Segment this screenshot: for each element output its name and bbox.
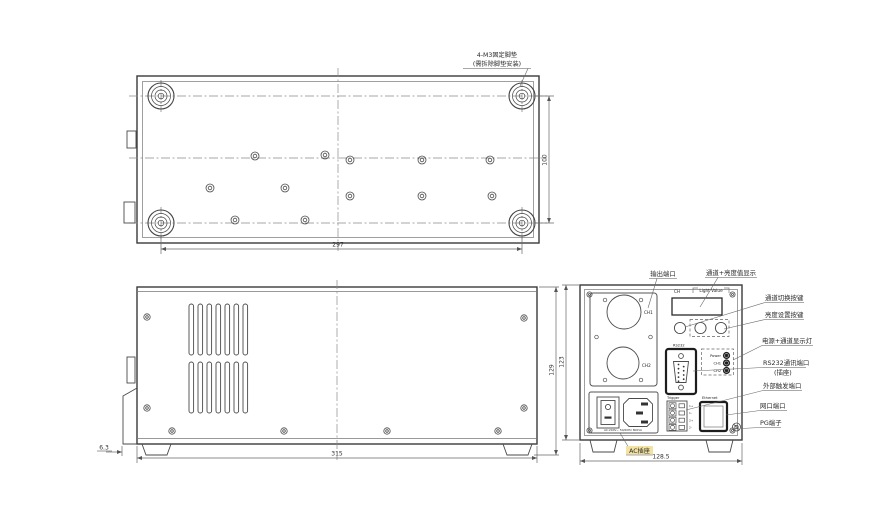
channel-switch-button	[674, 322, 685, 333]
rs232-connector	[666, 349, 696, 394]
display-group: CH Light Value	[672, 288, 729, 315]
brightness-set-callout-text: 亮度设置按键	[765, 310, 804, 319]
ac-socket-callout-text: AC插座	[629, 447, 650, 455]
output-connector-ch2	[607, 347, 639, 379]
top-dim-height-value: 100	[542, 154, 549, 166]
rear-feet	[590, 440, 733, 452]
callout-pg: PG端子	[741, 418, 782, 429]
side-dim-height: 129	[534, 287, 559, 455]
display-window	[672, 298, 722, 315]
side-dim-flange-value: 6.3	[99, 445, 109, 452]
rear-view: CH1 CH2 CH Light Value RS232	[559, 268, 814, 465]
trigger-pin-1p: 1+	[689, 404, 694, 408]
callout-ac-socket: AC插座	[620, 433, 653, 455]
ac-rating-text: AC:240V~ 50/60Hz 800VA	[604, 428, 642, 432]
rear-dim-width: 128.5	[580, 443, 742, 465]
vent-slots	[189, 304, 248, 413]
channel-switch-callout-text: 通道切换按键	[765, 293, 804, 302]
rs232-callout-line2: (插座)	[774, 368, 792, 377]
top-view-centerlines	[129, 68, 547, 251]
drawing-svg: 4-M3固定脚垫 (需拆除脚垫安装) 297 100	[0, 0, 888, 522]
top-view: 4-M3固定脚垫 (需拆除脚垫安装) 297 100	[124, 51, 554, 254]
top-dim-width-value: 297	[332, 242, 344, 249]
foot-pad-note: 4-M3固定脚垫 (需拆除脚垫安装)	[463, 51, 531, 86]
ethernet-callout-text: 网口端口	[760, 401, 786, 410]
top-dim-width: 297	[161, 236, 522, 254]
power-leds-callout-text: 电源+通道显示灯	[762, 336, 813, 345]
rs232-label: RS232	[673, 344, 685, 348]
ethernet-group: Ethernet	[700, 396, 727, 431]
rear-dim-height: 123	[559, 285, 580, 440]
callout-brightness-set: 亮度设置按键	[724, 310, 804, 329]
callout-ethernet: 网口端口	[726, 401, 787, 415]
trigger-pin-2p: 2+	[689, 418, 694, 422]
rs232-group: RS232	[666, 344, 696, 395]
output-ch1-label: CH1	[644, 310, 653, 315]
technical-drawing-sheet: 4-M3固定脚垫 (需拆除脚垫安装) 297 100	[0, 0, 888, 522]
led-power-label: Power	[710, 354, 721, 358]
foot-pad-note-line2: (需拆除脚垫安装)	[473, 60, 521, 68]
side-dim-width-value: 315	[331, 451, 343, 458]
display-callout-text: 通道+亮度值显示	[706, 268, 757, 277]
brightness-up-button	[715, 322, 726, 333]
display-ch-header: CH	[674, 289, 680, 294]
callout-rs232: RS232通讯端口 (插座)	[693, 358, 809, 377]
trigger-label: Trigger	[666, 396, 680, 400]
output-port-plate: CH1 CH2	[590, 293, 657, 386]
trigger-group: Trigger 1+ 1- 2+ 2-	[666, 396, 694, 431]
power-switch	[597, 397, 619, 428]
ethernet-label: Ethernet	[702, 396, 718, 400]
rear-dim-height-value: 123	[559, 356, 566, 368]
pg-terminal	[733, 423, 741, 431]
bottom-screws	[206, 151, 496, 224]
callout-power-leds: 电源+通道显示灯	[733, 336, 813, 360]
rs232-callout-line1: RS232通讯端口	[763, 358, 809, 367]
foot-pad-note-line1: 4-M3固定脚垫	[477, 51, 518, 59]
side-view: 315 6.3 129	[97, 280, 559, 463]
iec-inlet	[624, 399, 653, 427]
side-dim-height-value: 129	[549, 364, 556, 376]
side-screws	[144, 314, 527, 434]
pg-callout-text: PG端子	[760, 418, 782, 427]
brightness-down-button	[695, 322, 706, 333]
foot-pads	[148, 80, 535, 239]
trigger-pin-2n: 2-	[689, 426, 692, 430]
rs232-pins	[678, 364, 685, 383]
side-dim-flange: 6.3	[97, 445, 122, 457]
output-connector-ch1	[607, 295, 641, 329]
trigger-callout-text: 外部触发端口	[763, 381, 801, 390]
trigger-pin-1n: 1-	[689, 411, 692, 415]
side-connector-cutouts	[124, 131, 136, 223]
led-group: Power CH1 CH2	[702, 349, 734, 375]
led-ch1-label: CH1	[714, 362, 722, 366]
led-lamps	[724, 353, 730, 374]
rear-dim-width-value: 128.5	[652, 454, 669, 461]
output-ch2-label: CH2	[642, 363, 651, 368]
output-port-callout-text: 输出端口	[650, 269, 676, 278]
ac-inlet-group: AC:240V~ 50/60Hz 800VA	[589, 392, 658, 433]
side-left-protrusions	[123, 357, 137, 444]
